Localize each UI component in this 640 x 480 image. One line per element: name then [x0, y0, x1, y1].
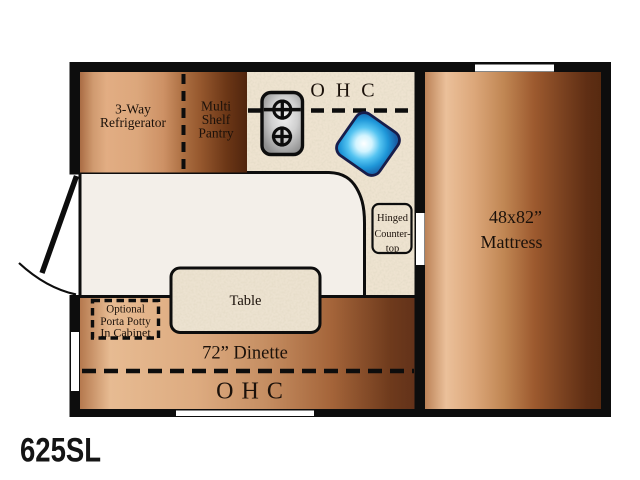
svg-text:O H C: O H C	[216, 379, 284, 405]
svg-text:Pantry: Pantry	[198, 126, 233, 141]
svg-text:In Cabinet: In Cabinet	[100, 326, 151, 340]
svg-text:top: top	[386, 244, 399, 255]
svg-text:Counter-: Counter-	[375, 229, 411, 240]
svg-text:72” Dinette: 72” Dinette	[202, 344, 288, 364]
svg-text:Mattress: Mattress	[481, 232, 543, 252]
svg-text:O H C: O H C	[310, 80, 377, 102]
svg-text:48x82”: 48x82”	[489, 207, 542, 227]
svg-text:Hinged: Hinged	[377, 213, 409, 224]
svg-text:Table: Table	[230, 293, 262, 309]
svg-text:Refrigerator: Refrigerator	[100, 115, 166, 130]
svg-text:625SL: 625SL	[20, 432, 101, 470]
